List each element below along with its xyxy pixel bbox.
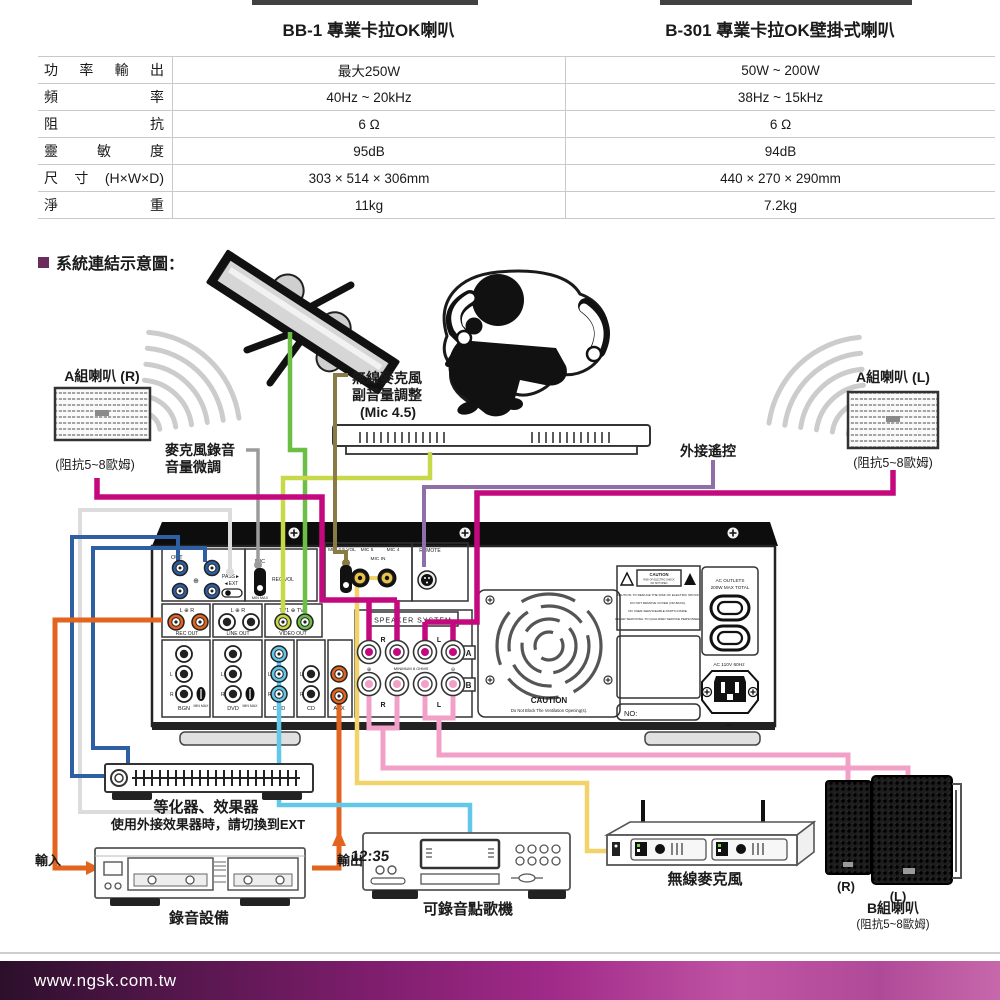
cmd-jacks <box>271 646 287 702</box>
equalizer: 等化器、效果器 使用外接效果器時，請切換到EXT <box>105 764 313 832</box>
speaker-b-r-label: (R) <box>837 879 855 894</box>
speaker-a-left-label: A組喇叭 (L) <box>856 369 930 385</box>
karaoke-label: 可錄音點歌機 <box>423 900 513 918</box>
speaker-b-group: (R) (L) B組喇叭 (阻抗5~8歐姆) <box>826 776 961 931</box>
fan-caution-sub: Do Not Block The Ventilation Opening(s). <box>511 708 587 713</box>
l-mark: L <box>221 672 224 678</box>
footer-divider <box>0 952 1000 954</box>
system-connection-diagram: A組喇叭 (R) (阻抗5~8歐姆) A組喇叭 (L) (阻抗5~8歐姆) <box>0 0 1000 952</box>
mic-toggle <box>254 568 266 596</box>
speaker-a-right-label: A組喇叭 (R) <box>64 368 139 384</box>
flat-panel-device <box>333 425 650 454</box>
cd-label: CD <box>307 706 315 712</box>
wire-end-cap <box>226 568 234 576</box>
l-mark: L <box>437 637 442 644</box>
sound-waves-left-icon <box>142 332 239 429</box>
rec-out-label: REC OUT <box>176 631 199 637</box>
group-b-badge: B <box>466 681 472 690</box>
warn-line: CAUTION: TO REDUCE THE RISK OF ELECTRIC … <box>617 593 700 597</box>
r-mark: R <box>380 637 385 644</box>
ext-label: ◄EXT <box>224 581 239 587</box>
line-out-lr: L ⊕ R <box>231 608 246 614</box>
wall-bracket-icon <box>952 784 961 878</box>
spec-sheet-page: BB-1 專業卡拉OK喇叭 B-301 專業卡拉OK壁掛式喇叭 功率輸出 最大2… <box>0 0 1000 1000</box>
footer-bar: www.ngsk.com.tw <box>0 961 1000 1000</box>
dvd-label: DVD <box>227 706 239 712</box>
warn-caution: CAUTION <box>649 572 668 577</box>
speaker-a-left-impedance: (阻抗5~8歐姆) <box>853 455 933 470</box>
video-out-label: VIDEO OUT <box>279 631 307 637</box>
warn-line: NO USER-SERVICEABLE PARTS INSIDE. <box>628 609 688 613</box>
mic-in-label: MIC IN <box>371 556 386 562</box>
minimum-ohms-label: MINIMUM 8 OHMS <box>394 666 429 671</box>
cassette-recorder: 錄音設備 輸入 輸出 <box>35 848 363 927</box>
warn-line: DO NOT REMOVE COVER (OR BACK). <box>630 601 686 605</box>
equalizer-label: 等化器、效果器 <box>153 798 259 816</box>
no-label: NO: <box>624 709 637 718</box>
speaker-a-right: A組喇叭 (R) (阻抗5~8歐姆) <box>55 368 150 472</box>
site-url: www.ngsk.com.tw <box>34 971 177 991</box>
output-arrow-icon <box>332 830 346 846</box>
min-max-label: MIN MAX <box>252 596 269 600</box>
wireless-vol-label-3: (Mic 4.5) <box>360 404 416 420</box>
mic5-label: MIC 5 <box>361 547 374 553</box>
l-mark: L <box>437 702 442 709</box>
warn-line: REFER SERVICING TO QUALIFIED SERVICE PER… <box>615 617 701 621</box>
amplifier-rear-panel: OUT PASS► ◄EXT ⊕ MIC REC VOL MIN MAX MIC… <box>152 522 778 745</box>
min-max-label: MIN MAX <box>194 704 210 708</box>
mic4-label: MIC 4 <box>387 547 400 553</box>
bgn-label: BGN <box>178 706 190 712</box>
karaoke-machine: 12:35 可錄音點歌機 <box>350 833 570 918</box>
ac-power-label: AC 110V 60Hz <box>713 662 745 668</box>
mic-rec-label-2: 音量微調 <box>165 459 221 475</box>
remote-din-jack <box>418 571 436 589</box>
singer-head <box>472 274 524 326</box>
remote-control-label: 外接遙控 <box>680 443 736 459</box>
singer-figure <box>444 271 608 417</box>
speaker-b-impedance: (阻抗5~8歐姆) <box>856 917 929 931</box>
speaker-a-left: A組喇叭 (L) (阻抗5~8歐姆) <box>848 369 938 470</box>
rec-out-lr: L ⊕ R <box>180 608 195 614</box>
fan-caution-label: CAUTION <box>531 696 568 705</box>
mic-rec-label-1: 麥克風錄音 <box>164 442 235 458</box>
ac-outlets-sub: 200W MAX TOTAL <box>711 585 750 590</box>
input-label: 輸入 <box>35 853 61 868</box>
r-mark: R <box>170 692 174 698</box>
wireless-mic-receiver: 無線麥克風 <box>607 800 814 888</box>
equalizer-note: 使用外接效果器時，請切換到EXT <box>110 817 305 832</box>
speaker-a-right-impedance: (阻抗5~8歐姆) <box>55 457 135 472</box>
group-a-badge: A <box>466 649 472 658</box>
line-out-label: LINE OUT <box>226 631 249 637</box>
r-mark: R <box>380 702 385 709</box>
diagram-labels: 麥克風錄音 音量微調 無線麥克風 副音量調整 (Mic 4.5) 外接遙控 <box>164 370 736 475</box>
plus-mark: ⊕ <box>193 578 199 585</box>
min-max-label: MIN MAX <box>243 704 259 708</box>
mic45-toggle <box>340 565 352 593</box>
karaoke-display-value: 12:35 <box>350 848 390 865</box>
wireless-mic-label: 無線麥克風 <box>667 870 742 888</box>
speaker-b-label: B組喇叭 <box>867 900 919 916</box>
wireless-vol-label-1: 無線麥克風 <box>352 370 422 386</box>
ac-outlets-label: AC OUTLETS <box>716 578 745 583</box>
warn-open: DO NOT OPEN <box>651 582 668 585</box>
mic5-jack <box>351 569 370 588</box>
ac-tilde: ~ <box>725 718 732 732</box>
wire-end-cap <box>254 561 262 569</box>
mic4-jack <box>378 569 397 588</box>
l-mark: L <box>170 672 173 678</box>
recorder-label: 錄音設備 <box>169 909 229 927</box>
wireless-vol-label-2: 副音量調整 <box>352 387 423 403</box>
